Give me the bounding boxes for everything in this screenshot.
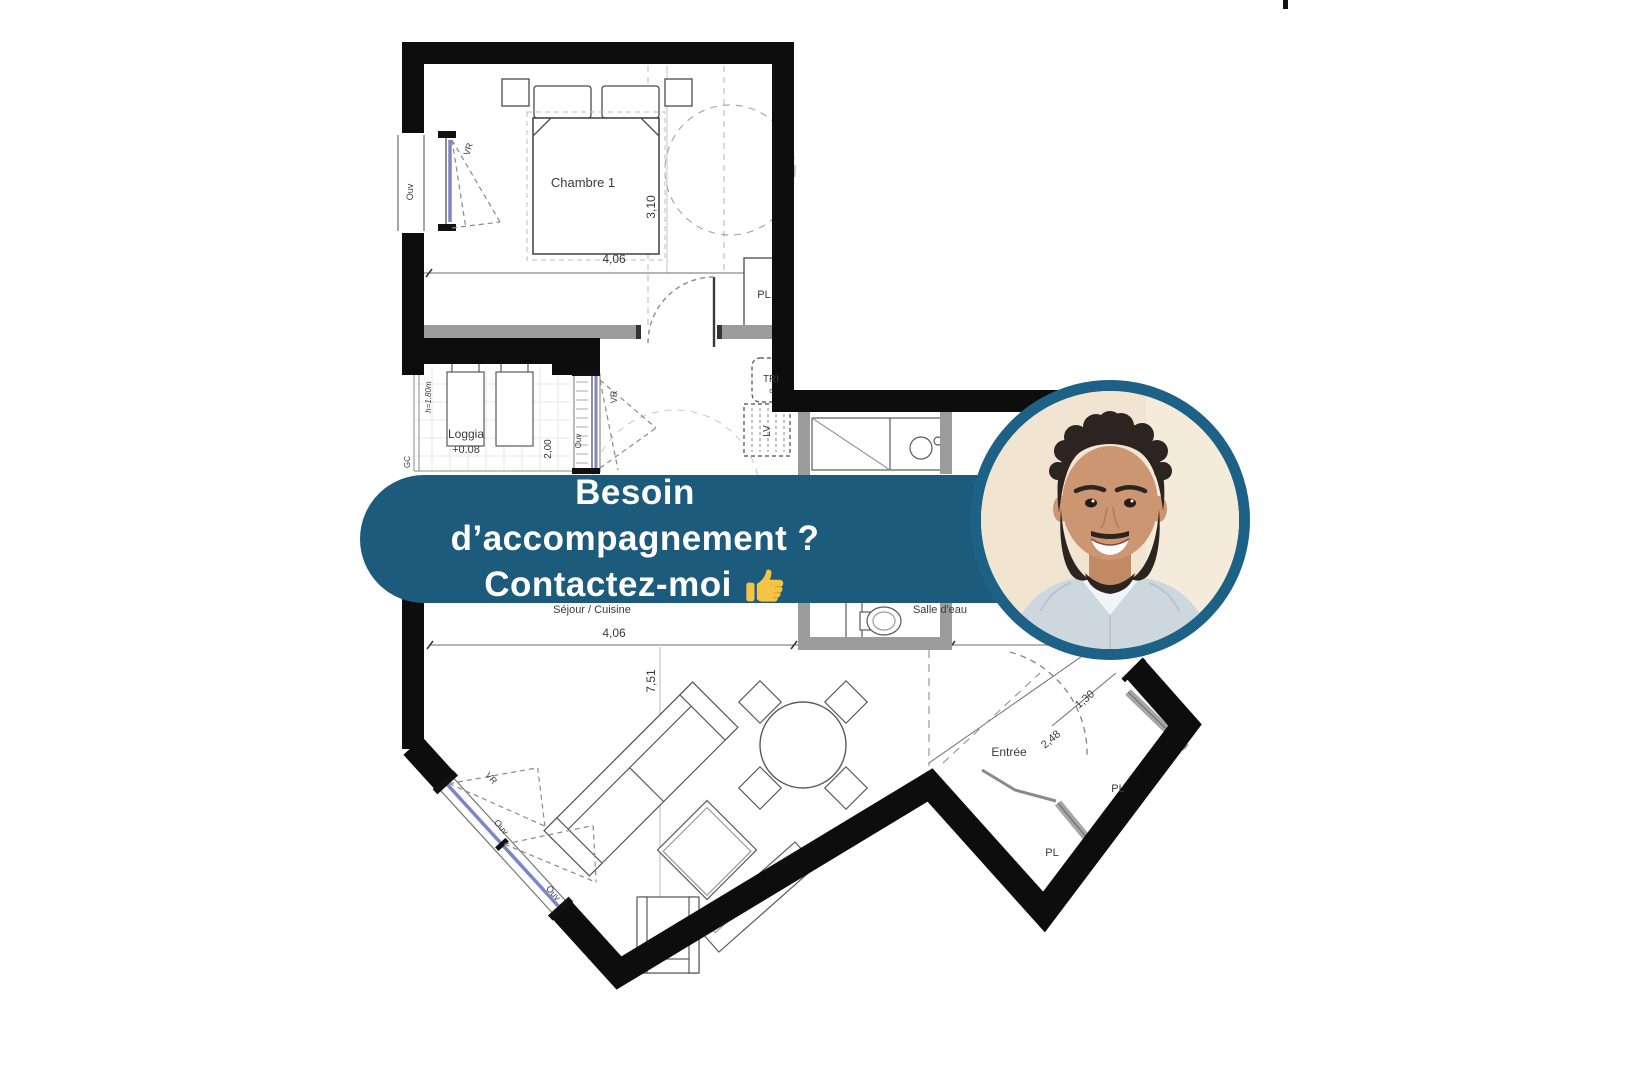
advisor-portrait-illustration [981, 391, 1239, 649]
bed [502, 79, 692, 260]
window-left-ouv: Ouv [405, 183, 415, 200]
window-loggia-ouv: Ouv [574, 434, 583, 449]
appliance-tri: TRI [763, 374, 779, 385]
window-bottom-vr: VR [483, 770, 499, 786]
advisor-photo [970, 380, 1250, 660]
washbasin [910, 437, 932, 459]
loggia-window [572, 370, 656, 474]
loggia-rail-height: h=1.80m [424, 381, 433, 413]
closet-label-entry2: PL [1045, 847, 1058, 859]
closet-label-entry1: PL [1111, 783, 1124, 795]
window-loggia-vr: VR [609, 390, 619, 403]
dim-living-width: 4,06 [602, 626, 626, 640]
loggia-level: +0.08 [452, 444, 480, 456]
room-label-bathroom: Salle d'eau [913, 604, 967, 616]
bedroom-window [396, 131, 500, 233]
flyer-page: Chambre 1 4,06 3,10 PL TRI c LV Loggia +… [0, 0, 1642, 1080]
room-label-bedroom: Chambre 1 [551, 175, 615, 190]
closet-label-hall: PL [757, 289, 770, 301]
dim-bedroom-width: 4,06 [602, 252, 626, 266]
appliance-lv: LV [762, 425, 773, 437]
dim-entry-1: 2,48 [1039, 728, 1063, 751]
bedroom-door [648, 277, 714, 347]
face [1062, 446, 1158, 560]
banner-line2: Contactez-moi [484, 562, 732, 608]
dining-table [739, 681, 867, 809]
top-edge-mark [1283, 0, 1288, 9]
dim-living-depth: 7,51 [644, 669, 658, 693]
dim-loggia-width: 2,00 [543, 439, 554, 459]
room-label-entry: Entrée [991, 745, 1027, 759]
room-label-loggia: Loggia [448, 427, 484, 441]
thumbs-up-icon [744, 564, 786, 606]
window-left-vr: VR [461, 141, 475, 156]
label-gc: GC [403, 456, 412, 468]
dim-bedroom-depth: 3,10 [644, 195, 658, 219]
banner-line1: Besoin d’accompagnement ? [420, 470, 850, 562]
banner-line2-row: Contactez-moi [420, 562, 850, 608]
appliance-tri-sub: c [769, 388, 773, 395]
